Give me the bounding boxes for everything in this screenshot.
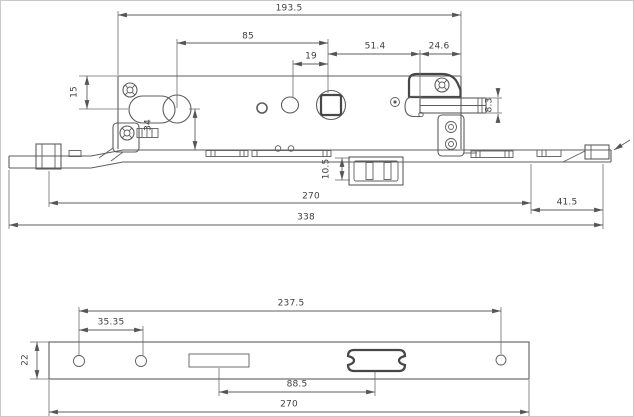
dim-slot-span: 88.5	[287, 381, 308, 390]
mounting-hole	[136, 356, 147, 367]
screw-hole	[257, 103, 267, 113]
hook-slot	[348, 350, 405, 371]
drive-bar	[471, 151, 513, 158]
screw-icon	[446, 122, 457, 133]
dim-cylinder-to-rail: 34	[145, 119, 154, 131]
handle-follower	[317, 91, 346, 120]
dim-edge-to-cylinder: 15	[71, 86, 80, 98]
technical-drawing-canvas	[1, 1, 634, 417]
screw-icon	[120, 126, 134, 140]
dim-oval-to-follower: 19	[305, 53, 317, 62]
dim-plate-length: 270	[280, 401, 298, 410]
dim-plate-width: 22	[22, 354, 31, 366]
dim-hook-bar-height: 8.3	[486, 98, 495, 113]
leader-arrow	[614, 140, 630, 150]
dim-slider-height: 10.5	[323, 159, 332, 180]
strike-plate	[49, 342, 529, 379]
dim-follower-to-hook: 51.4	[365, 43, 386, 52]
hook-assembly	[405, 74, 486, 117]
faceplate-rail	[9, 140, 630, 169]
dim-cylinder-to-follower: 85	[242, 33, 254, 42]
dim-overall-top: 193.5	[276, 5, 303, 14]
cylinder-hole	[129, 95, 191, 123]
mounting-hole	[74, 356, 85, 367]
screw-icon	[435, 78, 449, 92]
mounting-hole	[496, 355, 506, 365]
screw-icon	[123, 83, 137, 97]
pin-hole	[391, 98, 400, 107]
dim-overall-length: 338	[297, 214, 315, 223]
gearbox-slider	[349, 157, 403, 185]
rail-end-cap-right	[585, 145, 609, 159]
screw-icon	[446, 139, 457, 150]
dim-rail-span: 270	[302, 193, 320, 202]
drive-bar	[206, 151, 248, 157]
dim-hook-to-edge: 24.6	[429, 43, 450, 52]
technical-drawing-page: 193.5 85 19 51.4 24.6 15 34 8.3 10.5 270…	[0, 0, 634, 417]
dim-hole-span: 237.5	[278, 300, 305, 309]
dim-right-overhang: 41.5	[557, 199, 578, 208]
dim-hole-pitch: 35.35	[98, 319, 125, 328]
latch-slot	[189, 354, 249, 367]
oval-hole	[282, 97, 299, 113]
